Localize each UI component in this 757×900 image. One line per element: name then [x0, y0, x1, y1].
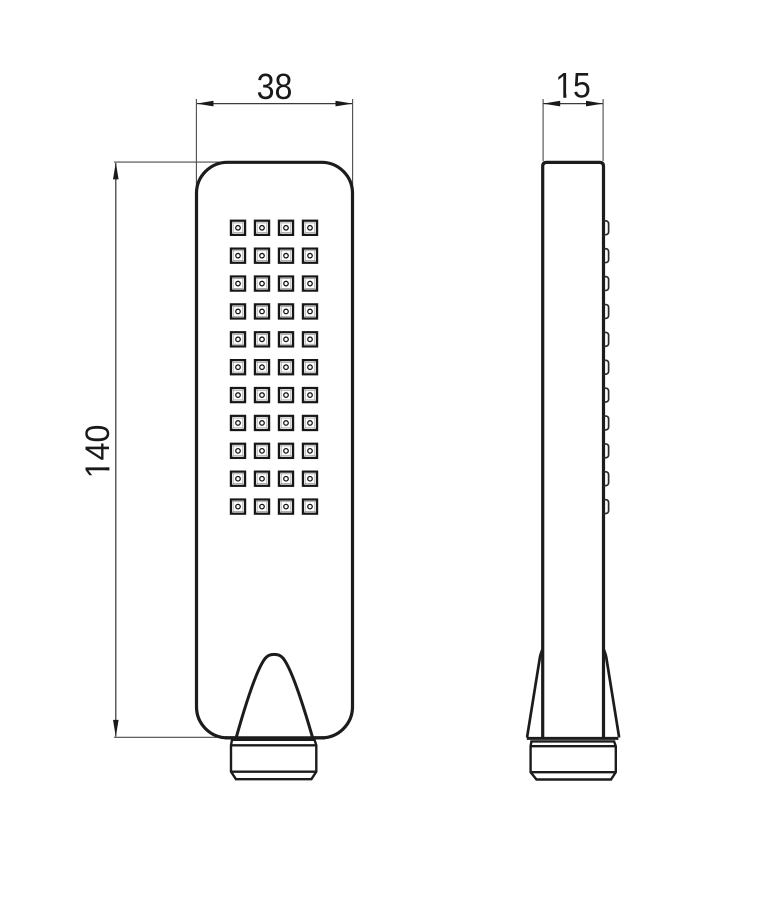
svg-text:140: 140 [79, 425, 117, 479]
svg-text:38: 38 [257, 66, 293, 107]
svg-text:15: 15 [555, 67, 591, 106]
